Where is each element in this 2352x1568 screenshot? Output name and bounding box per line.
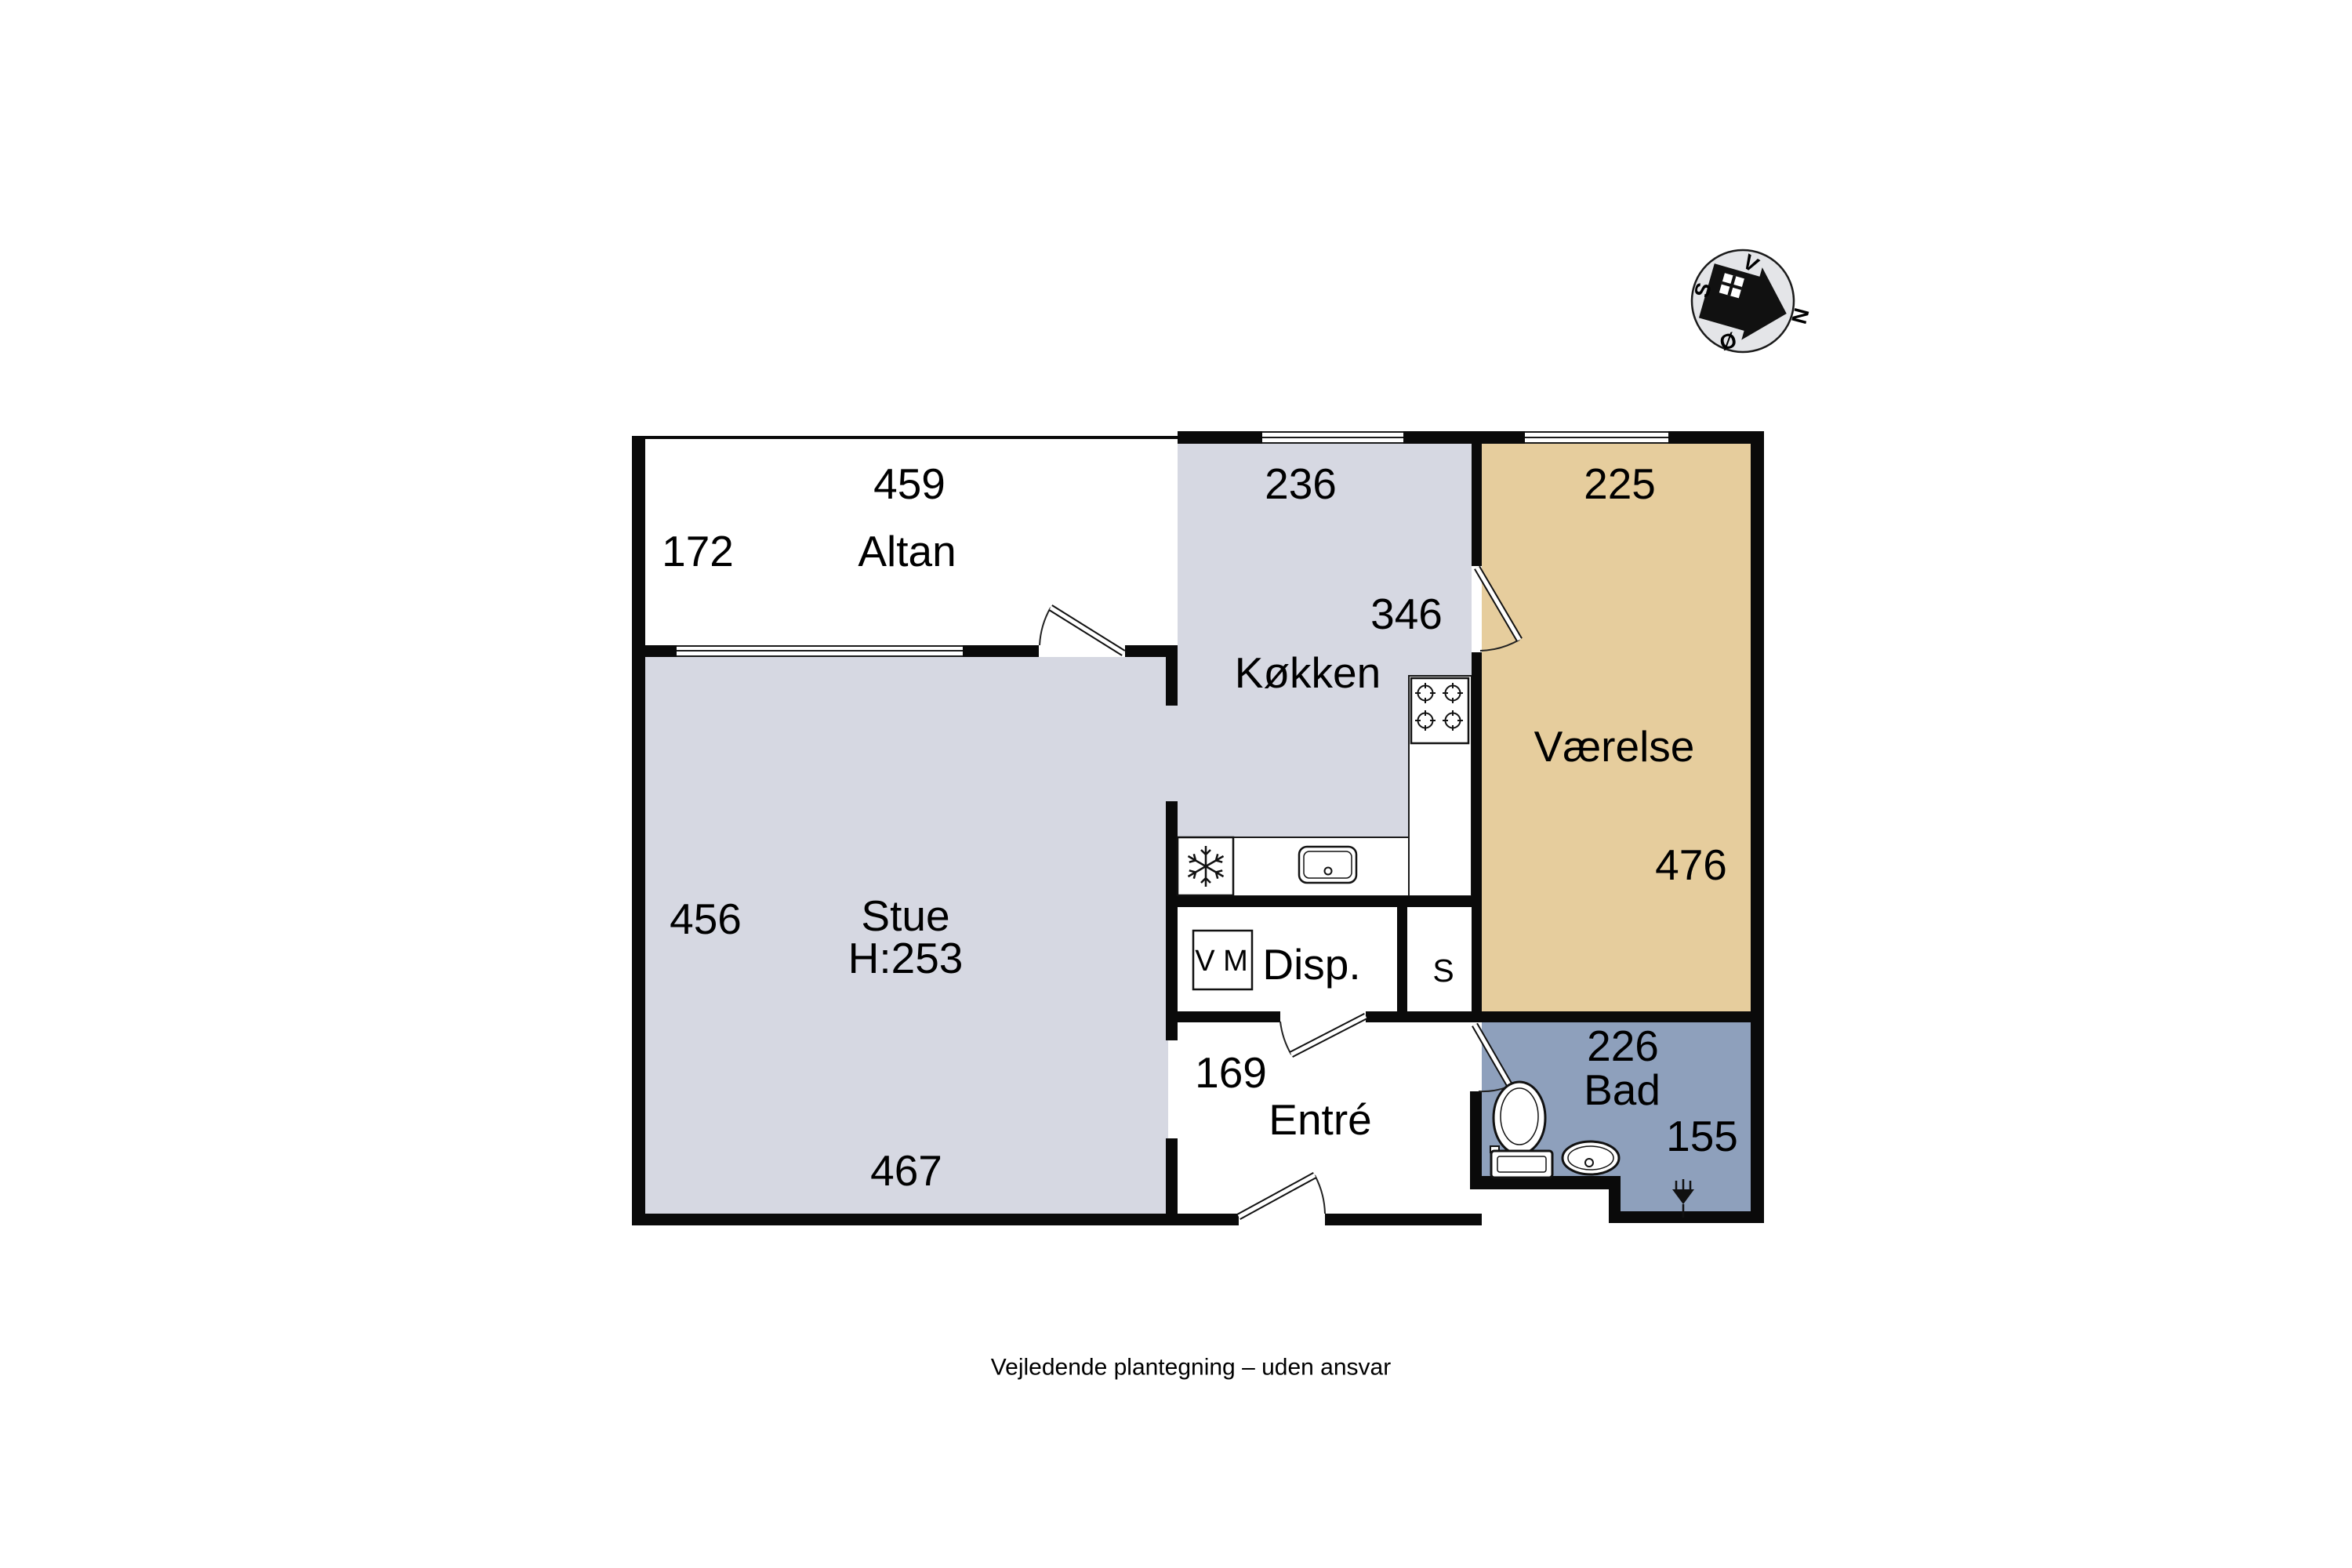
wall-segment (645, 645, 677, 657)
kokken-top-label: 236 (1265, 459, 1337, 508)
stue-name-label: Stue (861, 891, 949, 940)
wall-segment (1403, 431, 1525, 444)
washbasin-icon (1563, 1142, 1619, 1174)
wall-segment (1472, 1011, 1751, 1022)
vaerelse-right-label: 476 (1655, 840, 1727, 889)
skab-name-label: S (1432, 953, 1454, 989)
wall-segment (1472, 431, 1482, 566)
stue-left-label: 456 (670, 895, 742, 943)
wall-segment (1325, 1214, 1482, 1225)
freezer (1178, 837, 1233, 895)
kokken-name-label: Køkken (1235, 648, 1381, 697)
plan-caption: Vejledende plantegning – uden ansvar (991, 1355, 1391, 1381)
stue-kitchen-passage-floor (1168, 706, 1179, 801)
compass-north-label: N (1787, 306, 1813, 327)
floor-plan-page: V M 459 172 Altan 236 346 Køkken 225 Vær… (0, 0, 2352, 1568)
wall-segment (1470, 1091, 1482, 1189)
altan-name-label: Altan (858, 527, 956, 575)
window-altan (677, 645, 963, 657)
bad-top-label: 226 (1587, 1022, 1659, 1070)
vaerelse-top-label: 225 (1584, 459, 1656, 508)
wall-segment (1366, 1011, 1482, 1022)
balcony-railing-line (632, 436, 1178, 439)
wall-segment (1166, 801, 1178, 1040)
compass-rose: V S N Ø (1690, 250, 1813, 355)
altan-width-label: 459 (873, 459, 946, 508)
wall-segment (963, 645, 1039, 657)
stove-icon (1411, 678, 1468, 743)
wall-segment (1397, 907, 1407, 1011)
wall-segment (1166, 1011, 1280, 1022)
window-vaerelse (1525, 431, 1668, 444)
wall-segment (632, 1214, 1239, 1225)
washing-machine-label: V M (1195, 945, 1248, 978)
entre-name-label: Entré (1269, 1095, 1371, 1144)
washing-machine-icon: V M (1193, 931, 1252, 989)
wall-segment (1751, 431, 1764, 1223)
vaerelse-name-label: Værelse (1534, 722, 1695, 771)
bad-name-label: Bad (1584, 1065, 1661, 1114)
wall-segment (1472, 652, 1482, 1011)
floor-plan-canvas: V M 459 172 Altan 236 346 Køkken 225 Vær… (0, 0, 2352, 1568)
stue-ceiling-label: H:253 (848, 934, 964, 982)
wall-segment (1166, 645, 1178, 706)
kitchen-sink-icon (1299, 847, 1356, 883)
entre-width-label: 169 (1195, 1048, 1267, 1097)
disp-name-label: Disp. (1262, 940, 1360, 989)
wall-segment (1668, 431, 1764, 444)
stue-bottom-label: 467 (870, 1146, 942, 1195)
window-kokken (1262, 431, 1403, 444)
wall-segment (1166, 1138, 1178, 1219)
kokken-mid-label: 346 (1370, 590, 1443, 638)
wall-segment (1609, 1211, 1764, 1223)
altan-depth-label: 172 (662, 527, 734, 575)
wall-segment (632, 437, 645, 1225)
wall-segment (1178, 431, 1262, 444)
bad-right-label: 155 (1666, 1112, 1738, 1160)
wall-segment (1178, 896, 1472, 907)
wall-segment (1609, 1189, 1621, 1223)
